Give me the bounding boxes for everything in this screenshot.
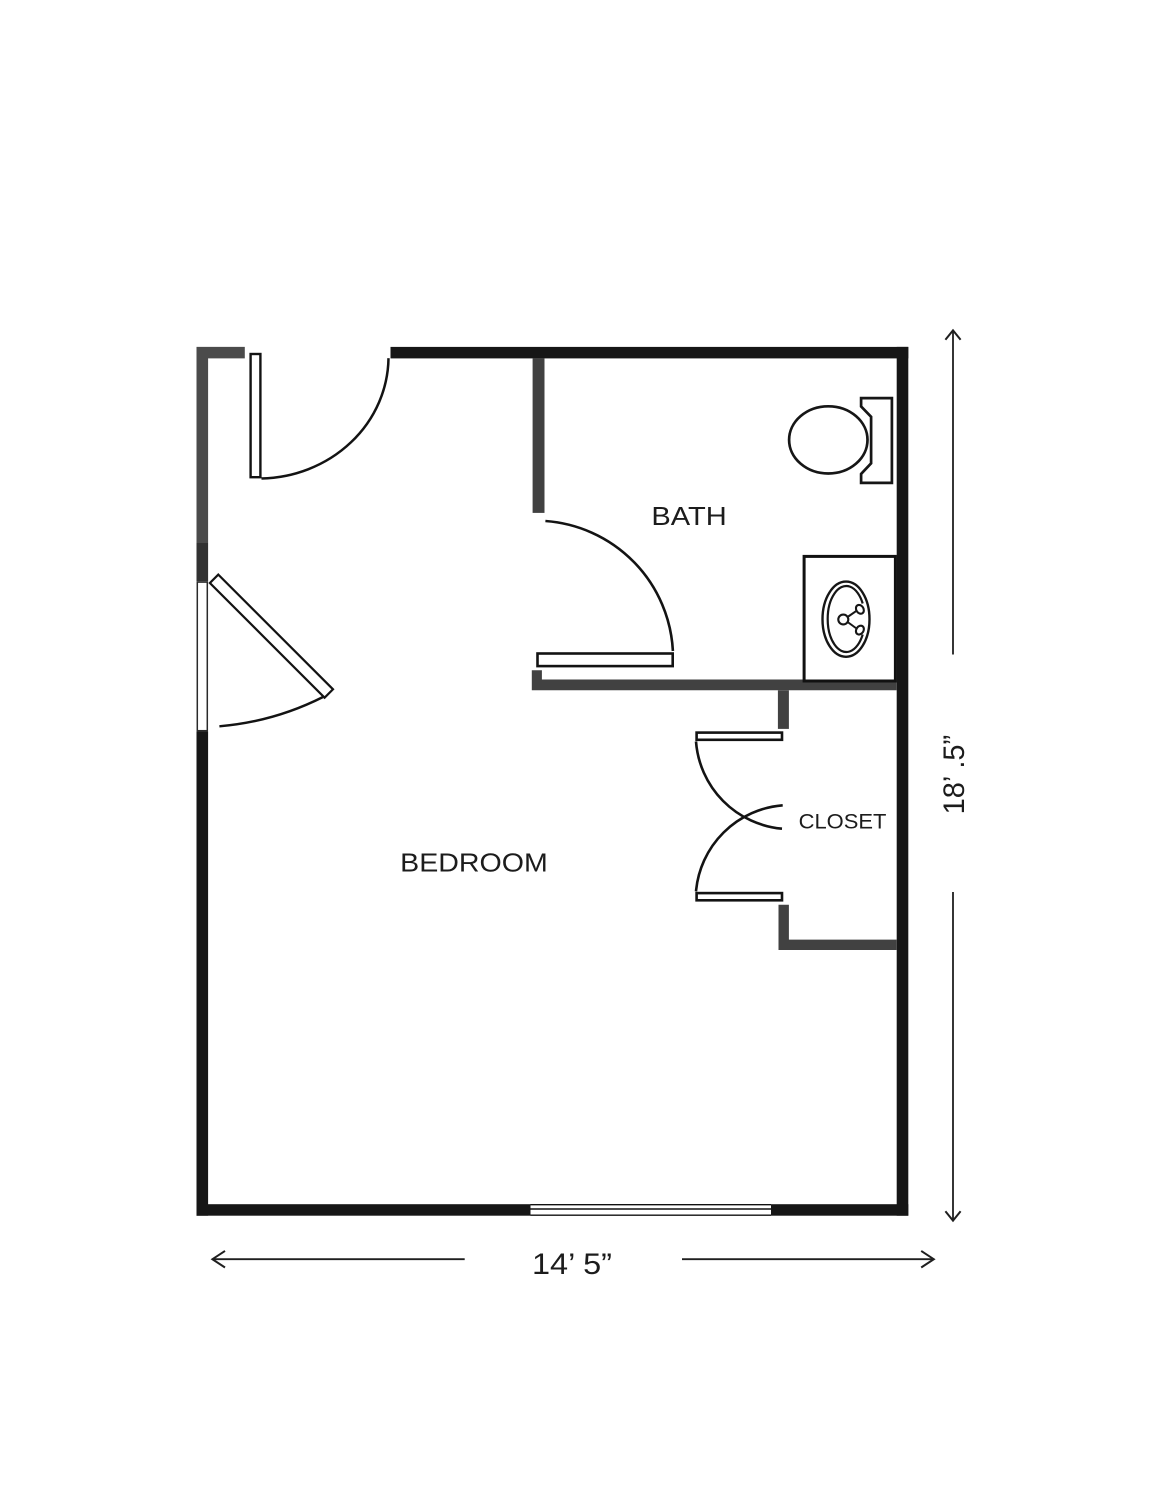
svg-text:CLOSET: CLOSET [799,809,887,833]
svg-text:18’ .5”: 18’ .5” [938,735,971,815]
svg-text:BATH: BATH [651,501,726,531]
svg-text:BEDROOM: BEDROOM [400,848,548,878]
svg-text:14’ 5”: 14’ 5” [532,1248,612,1281]
